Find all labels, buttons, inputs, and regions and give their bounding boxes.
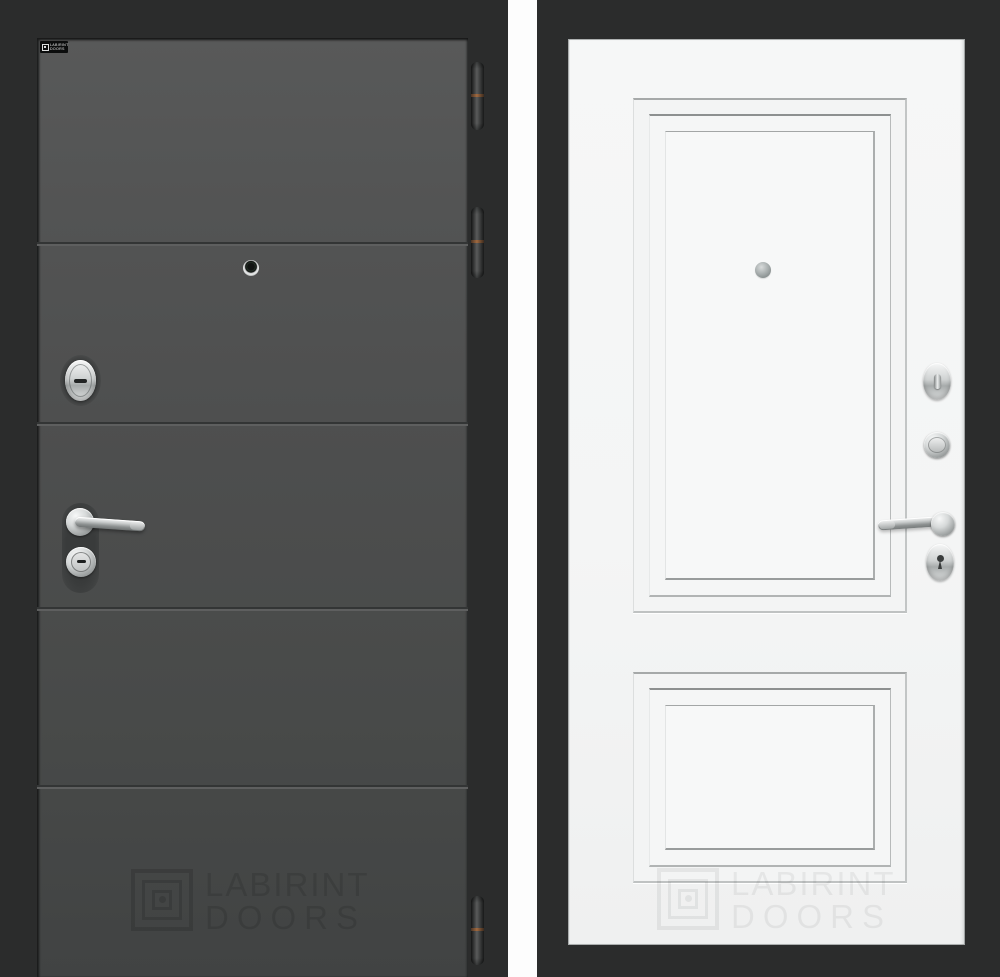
door-product-image: LABIRINT DOORS LABIRINT	[0, 0, 1000, 977]
front-door-groove	[37, 607, 468, 611]
watermark-line2: DOORS	[205, 901, 370, 934]
front-door-photo: LABIRINT DOORS LABIRINT	[0, 0, 508, 977]
hinge-top	[471, 62, 484, 130]
hinge-middle	[471, 207, 484, 278]
thumbturn-escutcheon	[923, 363, 951, 400]
keyhole-escutcheon	[926, 544, 954, 581]
front-door-groove	[37, 785, 468, 789]
peephole	[243, 260, 259, 276]
front-door-groove	[37, 422, 468, 426]
back-door-photo: LABIRINT DOORS	[537, 0, 1000, 977]
brand-badge-line2: DOORS	[50, 47, 69, 51]
labyrinth-logo-icon	[657, 868, 719, 930]
front-door-face	[37, 38, 468, 977]
hinge-bottom	[471, 896, 484, 965]
key-slot	[77, 560, 86, 564]
watermark: LABIRINT DOORS	[657, 868, 896, 933]
watermark-line1: LABIRINT	[205, 869, 370, 901]
key-slot	[74, 379, 87, 383]
raised-panel-bottom	[633, 672, 907, 883]
key-cylinder	[66, 547, 96, 577]
round-cylinder	[924, 432, 950, 458]
brand-badge: LABIRINT DOORS	[40, 41, 68, 53]
raised-panel-top	[633, 98, 907, 613]
upper-cylinder-escutcheon	[60, 355, 101, 406]
thumbturn-knob	[934, 374, 941, 389]
keyhole	[937, 555, 944, 562]
watermark-line2: DOORS	[731, 900, 896, 933]
labyrinth-logo-icon	[42, 44, 49, 51]
watermark: LABIRINT DOORS	[131, 869, 370, 934]
handle-rose	[931, 512, 955, 536]
watermark-line1: LABIRINT	[731, 868, 896, 900]
labyrinth-logo-icon	[131, 869, 193, 931]
photo-divider	[508, 0, 537, 977]
front-door-groove	[37, 242, 468, 246]
peephole	[755, 262, 771, 278]
